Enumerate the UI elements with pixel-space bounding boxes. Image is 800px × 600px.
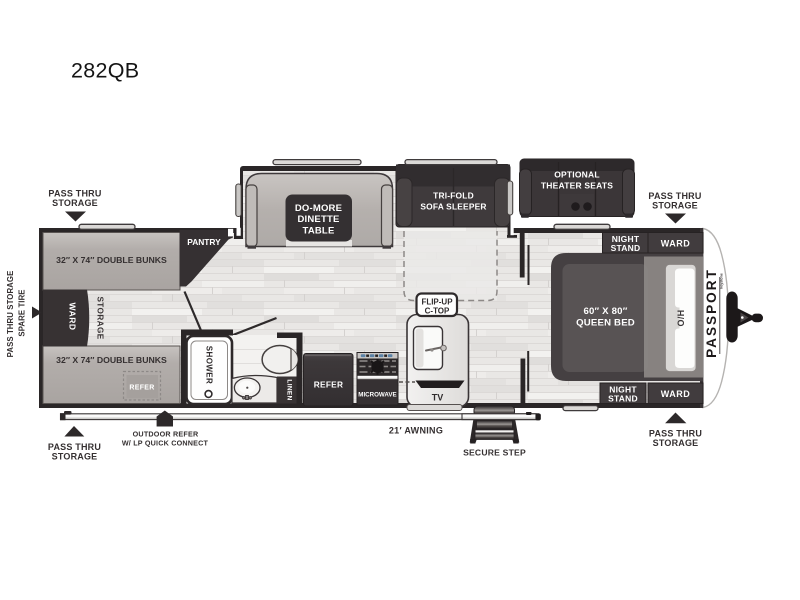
svg-text:MICROWAVE: MICROWAVE: [358, 392, 396, 399]
svg-text:STORAGE: STORAGE: [652, 201, 698, 211]
svg-text:PASS THRU: PASS THRU: [48, 189, 101, 199]
svg-text:PASSPORT: PASSPORT: [704, 268, 719, 358]
svg-text:REFER: REFER: [129, 385, 154, 392]
svg-text:STORAGE: STORAGE: [52, 198, 98, 208]
svg-text:32″ X 74″ DOUBLE BUNKS: 32″ X 74″ DOUBLE BUNKS: [56, 355, 167, 365]
svg-text:WARD: WARD: [661, 239, 691, 249]
svg-text:TRI-FOLD: TRI-FOLD: [433, 191, 474, 201]
svg-text:STORAGE: STORAGE: [96, 296, 105, 339]
svg-text:WARD: WARD: [661, 389, 691, 399]
svg-text:TV: TV: [432, 393, 444, 403]
svg-text:QUEEN BED: QUEEN BED: [576, 318, 635, 329]
svg-text:FLIP-UP: FLIP-UP: [421, 298, 453, 307]
svg-text:LINEN: LINEN: [286, 379, 293, 400]
svg-text:SECURE STEP: SECURE STEP: [463, 448, 526, 458]
svg-text:32″ X 74″ DOUBLE BUNKS: 32″ X 74″ DOUBLE BUNKS: [56, 255, 167, 265]
svg-text:O/H: O/H: [676, 310, 686, 327]
svg-text:SPARE TIRE: SPARE TIRE: [18, 289, 27, 336]
svg-text:W/ LP QUICK CONNECT: W/ LP QUICK CONNECT: [122, 439, 209, 448]
svg-text:OPTIONAL: OPTIONAL: [554, 170, 600, 180]
svg-text:DINETTE: DINETTE: [297, 214, 339, 225]
svg-text:SHOWER: SHOWER: [205, 346, 214, 384]
svg-text:STORAGE: STORAGE: [653, 438, 699, 448]
svg-text:PASS THRU: PASS THRU: [648, 191, 701, 201]
svg-text:PANTRY: PANTRY: [187, 237, 221, 247]
svg-text:keystone: keystone: [720, 273, 724, 289]
svg-text:REFER: REFER: [314, 380, 344, 390]
svg-text:C-TOP: C-TOP: [425, 307, 450, 316]
svg-text:TABLE: TABLE: [303, 225, 335, 236]
svg-text:OUTDOOR REFER: OUTDOOR REFER: [133, 430, 199, 439]
svg-text:DO-MORE: DO-MORE: [295, 203, 342, 214]
svg-text:60″ X 80″: 60″ X 80″: [583, 306, 627, 317]
svg-text:STORAGE: STORAGE: [52, 452, 98, 462]
svg-text:WARD: WARD: [68, 303, 78, 331]
svg-text:STAND: STAND: [608, 394, 638, 404]
svg-text:PASS THRU STORAGE: PASS THRU STORAGE: [6, 271, 15, 358]
svg-text:PASS THRU: PASS THRU: [48, 442, 101, 452]
svg-text:282QB: 282QB: [71, 59, 139, 83]
svg-text:PASS THRU: PASS THRU: [649, 429, 702, 439]
svg-text:SOFA SLEEPER: SOFA SLEEPER: [420, 202, 486, 212]
svg-text:THEATER SEATS: THEATER SEATS: [541, 180, 613, 190]
svg-text:STAND: STAND: [611, 243, 641, 253]
svg-text:21′ AWNING: 21′ AWNING: [389, 426, 443, 436]
